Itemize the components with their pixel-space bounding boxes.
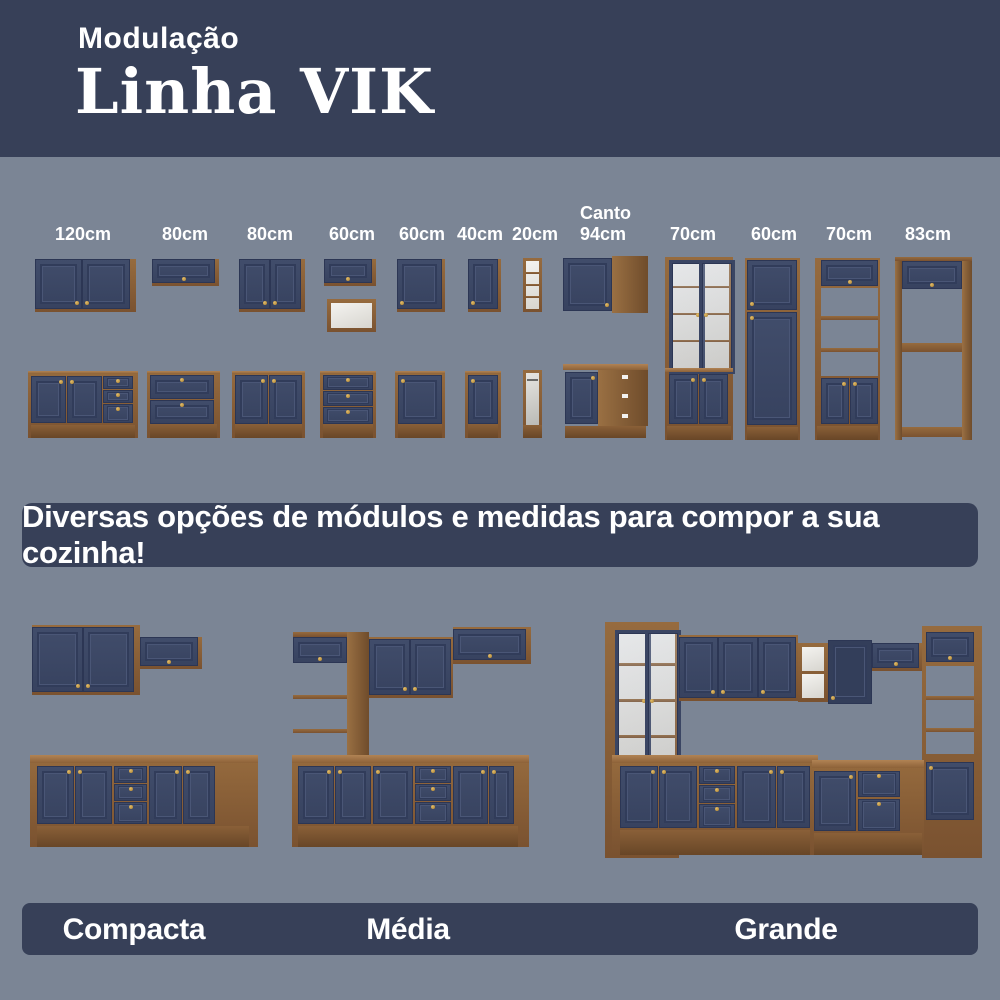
cabinet-door — [83, 627, 134, 692]
module-80b-base — [232, 371, 305, 438]
countertop — [28, 371, 138, 374]
drawer — [699, 785, 735, 803]
drawer — [103, 404, 133, 423]
drawer — [103, 390, 133, 403]
module-80a-base — [147, 371, 220, 438]
cabinet-door — [737, 766, 776, 828]
grande-base-run-left — [612, 755, 818, 855]
media-tower — [293, 632, 369, 760]
knob — [327, 770, 331, 774]
grande-corner-wall-door — [828, 640, 872, 704]
page-title: Linha VIK — [75, 55, 434, 128]
knob — [167, 660, 171, 664]
plinth — [398, 424, 442, 438]
knob — [346, 394, 350, 398]
knob — [715, 769, 719, 773]
drawer — [323, 407, 373, 424]
knob — [413, 687, 417, 691]
hinge — [622, 375, 628, 379]
shelf — [526, 296, 539, 298]
module-40-wall — [468, 259, 501, 312]
knob — [662, 770, 666, 774]
cabinet-door — [747, 260, 797, 310]
countertop — [30, 755, 258, 763]
countertop — [612, 755, 818, 763]
media-flip-cabinet — [453, 627, 531, 664]
knob — [650, 699, 654, 703]
shelf — [821, 316, 878, 320]
module-60-tall-pantry — [745, 258, 800, 440]
grande-right-tower — [922, 626, 982, 858]
cabinet-door — [850, 378, 878, 424]
size-label-60cm-c: 60cm — [734, 224, 814, 245]
knob — [180, 403, 184, 407]
knob — [85, 301, 89, 305]
cabinet-door — [373, 766, 413, 824]
flip-door — [150, 400, 214, 424]
cabinet-door — [821, 378, 849, 424]
open-shelf-bay — [293, 665, 347, 760]
plinth — [817, 426, 878, 440]
wood-corner-panel — [612, 256, 648, 313]
flip-door — [453, 629, 526, 660]
knob — [471, 301, 475, 305]
knob — [849, 775, 853, 779]
display-interior — [669, 260, 729, 368]
cabinet-door — [758, 637, 796, 698]
cabinet-door — [620, 766, 658, 828]
module-canto-wall — [563, 256, 648, 313]
cabinet-door — [718, 637, 758, 698]
knob — [129, 787, 133, 791]
header-banner: Modulação Linha VIK — [0, 0, 1000, 157]
knob — [59, 380, 63, 384]
cabinet-door — [35, 259, 82, 309]
knob — [129, 769, 133, 773]
shelf — [902, 343, 962, 352]
display-interior — [615, 630, 675, 772]
module-80a-wall — [152, 259, 219, 286]
knob — [431, 787, 435, 791]
knob — [403, 687, 407, 691]
knob — [431, 805, 435, 809]
open-shelf-bay — [926, 666, 974, 754]
countertop — [147, 371, 220, 374]
knob — [78, 770, 82, 774]
knob — [182, 277, 186, 281]
countertop — [232, 371, 305, 374]
module-60b-base — [395, 371, 445, 438]
module-80b-wall — [239, 259, 305, 312]
knob — [431, 769, 435, 773]
shelf — [821, 348, 878, 352]
shelf — [902, 427, 962, 437]
grande-bridge-flip — [872, 643, 922, 671]
knob — [702, 378, 706, 382]
plinth — [323, 424, 373, 438]
drawer — [699, 766, 735, 784]
knob — [929, 766, 933, 770]
size-label-canto: Canto 94cm — [580, 203, 631, 245]
wood-side — [347, 632, 369, 760]
knob — [877, 774, 881, 778]
knob — [492, 770, 496, 774]
flip-door — [152, 259, 215, 283]
knob — [400, 301, 404, 305]
knob — [488, 654, 492, 658]
size-label-70cm-a: 70cm — [653, 224, 733, 245]
flip-door — [293, 637, 347, 663]
hinge — [622, 414, 628, 418]
cabinet-door — [659, 766, 697, 828]
countertop — [465, 371, 501, 374]
knob — [471, 379, 475, 383]
plinth — [37, 826, 249, 847]
knob — [591, 376, 595, 380]
cabinet-door — [814, 771, 856, 831]
cabinet-door — [565, 372, 598, 424]
knob — [273, 301, 277, 305]
knob — [704, 313, 708, 317]
cabinet-door — [747, 312, 797, 425]
countertop — [320, 371, 376, 374]
knob — [263, 301, 267, 305]
knob — [180, 378, 184, 382]
tagline-text: Diversas opções de módulos e medidas par… — [22, 499, 978, 571]
compacta-wall-cabinet — [32, 625, 140, 695]
cabinet-door — [489, 766, 514, 824]
knob — [261, 379, 265, 383]
size-label-83cm: 83cm — [888, 224, 968, 245]
drawer — [103, 376, 133, 389]
tagline-banner: Diversas opções de módulos e medidas par… — [22, 503, 978, 567]
knob — [346, 378, 350, 382]
knob — [930, 283, 934, 287]
cabinet-door — [149, 766, 182, 824]
plinth — [620, 830, 810, 855]
cabinet-door — [298, 766, 334, 824]
cabinet-door — [468, 375, 498, 424]
plinth — [747, 427, 798, 440]
cabinet-door — [32, 627, 83, 692]
knob — [948, 656, 952, 660]
open-niche — [802, 647, 824, 671]
cabinet-door — [269, 375, 302, 424]
wood-side — [895, 257, 902, 440]
media-wall-cabinet — [369, 637, 453, 698]
header-kicker: Modulação — [78, 22, 239, 56]
knob — [346, 277, 350, 281]
cabinet-door — [239, 259, 270, 309]
module-70-tall-display — [665, 257, 733, 440]
shelf — [926, 696, 974, 700]
module-83-tall-frame — [895, 257, 972, 440]
kitchen-label-compacta: Compacta — [34, 913, 234, 947]
knob — [76, 684, 80, 688]
cabinet-door — [82, 259, 130, 309]
cabinet-door — [270, 259, 301, 309]
open-oven-bay — [821, 288, 878, 376]
knob — [651, 770, 655, 774]
knob — [67, 770, 71, 774]
module-60a-open-niche — [327, 299, 376, 332]
cabinet-door — [397, 259, 442, 309]
cabinet-door — [183, 766, 215, 824]
size-label-80cm-b: 80cm — [230, 224, 310, 245]
shelf — [526, 272, 539, 274]
grande-wall-run — [679, 635, 798, 701]
cabinet-door — [37, 766, 74, 824]
flip-door — [324, 259, 372, 283]
knob — [691, 378, 695, 382]
drawer — [114, 802, 147, 824]
flip-door — [150, 375, 214, 399]
cabinet-door — [31, 376, 66, 423]
plinth — [468, 424, 498, 438]
shelf — [293, 695, 347, 699]
towel-rail — [527, 379, 538, 381]
plinth — [298, 826, 518, 847]
countertop — [292, 755, 529, 763]
knob — [129, 805, 133, 809]
kitchen-label-grande: Grande — [686, 913, 886, 947]
knob — [75, 301, 79, 305]
flip-door — [902, 261, 962, 289]
module-60b-wall — [397, 259, 445, 312]
knob — [831, 696, 835, 700]
knob — [116, 393, 120, 397]
cabinet-door — [669, 374, 698, 424]
drawer — [114, 766, 147, 783]
knob — [750, 302, 754, 306]
knob — [848, 280, 852, 284]
knob — [842, 382, 846, 386]
knob — [116, 379, 120, 383]
knob — [86, 684, 90, 688]
drawer — [114, 784, 147, 801]
plinth — [31, 425, 135, 438]
compacta-flip-cabinet — [140, 637, 202, 669]
drawer — [699, 804, 735, 828]
knob — [877, 802, 881, 806]
knob — [853, 382, 857, 386]
knob — [401, 379, 405, 383]
cabinet-door — [777, 766, 810, 828]
knob — [186, 770, 190, 774]
wood-band — [665, 368, 733, 372]
knob — [715, 788, 719, 792]
plinth — [565, 426, 646, 438]
size-label-70cm-b: 70cm — [809, 224, 889, 245]
cabinet-door — [398, 375, 442, 424]
wood-side — [962, 257, 972, 440]
knob — [894, 662, 898, 666]
media-base-run — [292, 755, 529, 847]
flip-door — [821, 260, 878, 286]
size-label-80cm-a: 80cm — [145, 224, 225, 245]
knob — [605, 303, 609, 307]
grande-corner-shelf — [798, 643, 828, 702]
compacta-base-run — [30, 755, 258, 847]
drawer — [858, 799, 900, 831]
module-70-tall-oven — [815, 258, 880, 440]
module-120-base — [28, 371, 138, 438]
cabinet-door — [67, 376, 102, 423]
cabinet-door — [468, 259, 498, 309]
cabinet-door — [679, 637, 718, 698]
wood-corner-panel — [598, 370, 648, 426]
shelf — [526, 284, 539, 286]
kitchen-label-media: Média — [308, 913, 508, 947]
knob — [116, 407, 120, 411]
knob — [70, 380, 74, 384]
size-label-120cm: 120cm — [43, 224, 123, 245]
flip-door — [926, 632, 974, 662]
drawer — [415, 802, 451, 824]
module-120-wall — [35, 259, 136, 312]
knob — [272, 379, 276, 383]
flip-door — [140, 637, 198, 666]
plinth — [667, 426, 731, 440]
knob — [721, 690, 725, 694]
size-label-20cm: 20cm — [495, 224, 575, 245]
plinth — [523, 425, 542, 438]
cabinet-door — [563, 258, 612, 311]
cabinet-door — [235, 375, 268, 424]
promo-page: Modulação Linha VIK 120cm 80cm 80cm 60cm… — [0, 0, 1000, 1000]
flip-door — [872, 643, 919, 668]
knob — [318, 657, 322, 661]
drawer — [858, 771, 900, 797]
open-niche — [331, 303, 372, 328]
cabinet-door — [335, 766, 371, 824]
size-label-canto-line2: 94cm — [580, 224, 631, 245]
countertop — [812, 760, 924, 768]
knob — [175, 770, 179, 774]
knob — [338, 770, 342, 774]
cabinet-door — [926, 762, 974, 820]
open-niche — [802, 674, 824, 698]
shelf — [293, 729, 347, 733]
size-label-canto-line1: Canto — [580, 203, 631, 224]
glass-door — [699, 260, 735, 374]
hinge — [622, 394, 628, 398]
module-20-wall-shelf — [523, 258, 542, 312]
knob — [346, 410, 350, 414]
knob — [769, 770, 773, 774]
cabinet-door — [410, 639, 451, 695]
plinth — [235, 424, 302, 438]
knob — [715, 807, 719, 811]
cabinet-door — [453, 766, 488, 824]
shelf — [926, 728, 974, 732]
countertop — [395, 371, 445, 374]
module-20-base — [523, 370, 542, 438]
module-40-base — [465, 371, 501, 438]
size-label-60cm-a: 60cm — [312, 224, 392, 245]
plinth — [814, 833, 922, 855]
knob — [761, 690, 765, 694]
knob — [780, 770, 784, 774]
module-canto-base — [563, 364, 648, 438]
module-60a-wall — [324, 259, 376, 286]
knob — [481, 770, 485, 774]
drawer — [323, 375, 373, 390]
cabinet-door — [75, 766, 112, 824]
drawer — [323, 391, 373, 406]
knob — [376, 770, 380, 774]
plinth — [150, 424, 217, 438]
drawer — [415, 766, 451, 783]
cabinet-door — [699, 374, 728, 424]
knob — [750, 316, 754, 320]
module-60a-base — [320, 371, 376, 438]
grande-base-run-right — [812, 760, 924, 855]
drawer — [415, 784, 451, 801]
knob — [711, 690, 715, 694]
cabinet-door — [369, 639, 410, 695]
